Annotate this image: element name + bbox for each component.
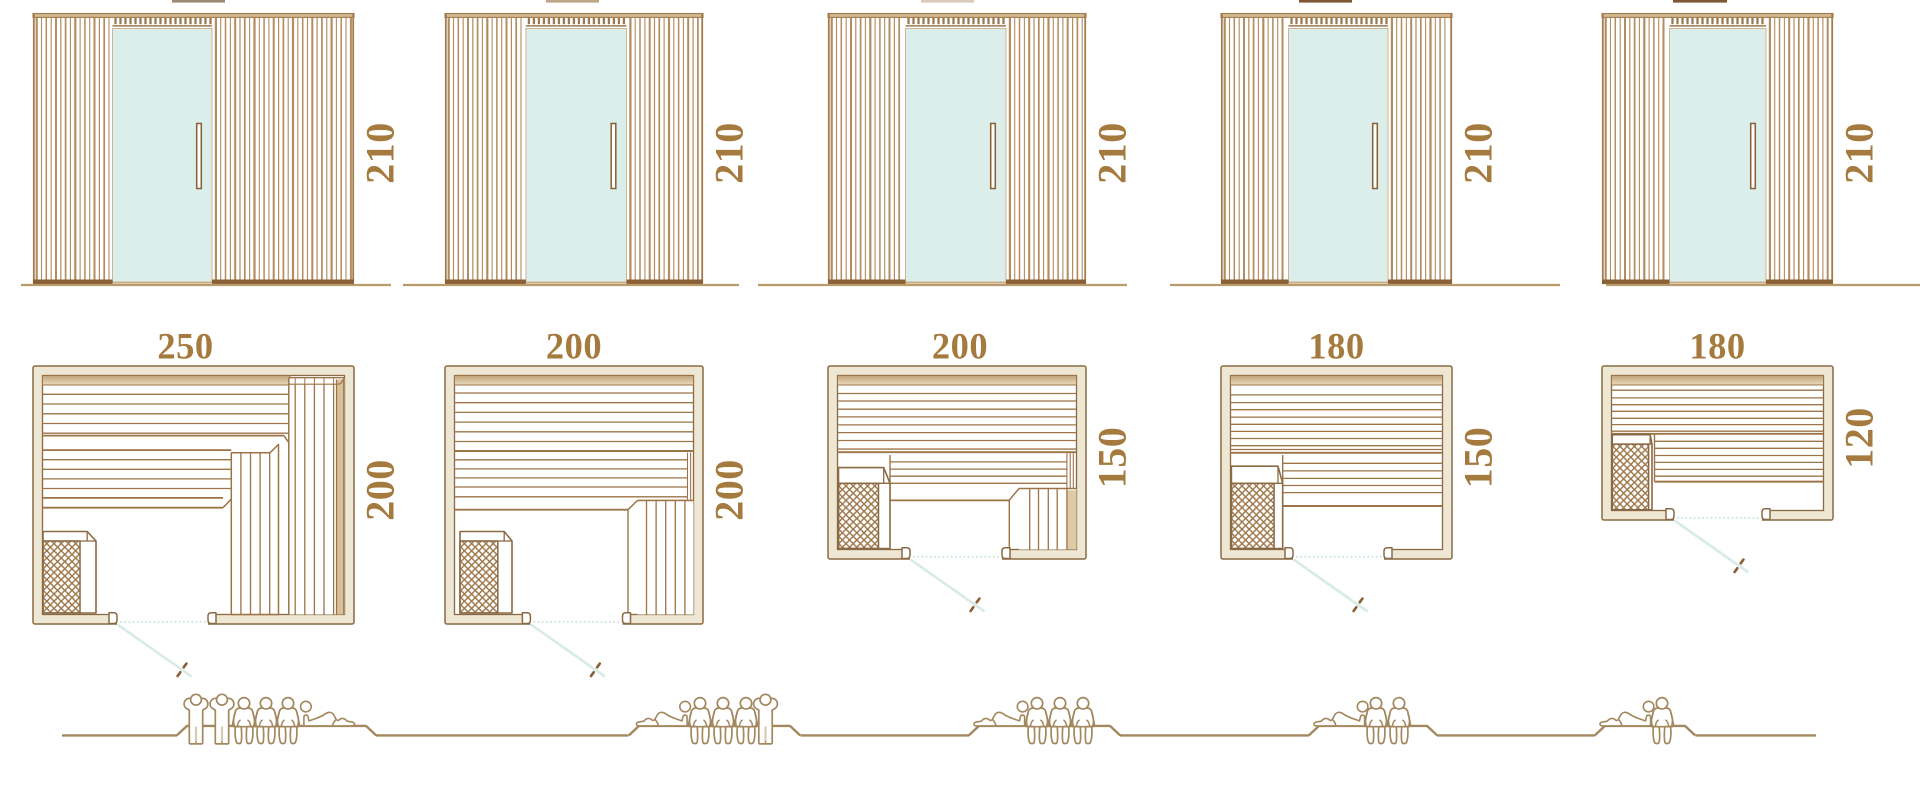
- svg-text:210: 210: [1090, 122, 1135, 184]
- svg-text:210: 210: [707, 122, 752, 184]
- svg-text:210: 210: [1456, 122, 1501, 184]
- svg-text:180: 180: [1308, 326, 1364, 367]
- svg-text:120: 120: [1837, 407, 1882, 469]
- svg-text:200: 200: [707, 459, 752, 521]
- svg-text:250: 250: [157, 326, 213, 367]
- svg-text:200: 200: [932, 326, 988, 367]
- svg-text:180: 180: [1689, 326, 1745, 367]
- svg-text:200: 200: [546, 326, 602, 367]
- svg-text:150: 150: [1456, 427, 1501, 489]
- svg-text:200: 200: [358, 459, 403, 521]
- svg-text:150: 150: [1090, 427, 1135, 489]
- svg-text:210: 210: [1837, 122, 1882, 184]
- svg-text:210: 210: [358, 122, 403, 184]
